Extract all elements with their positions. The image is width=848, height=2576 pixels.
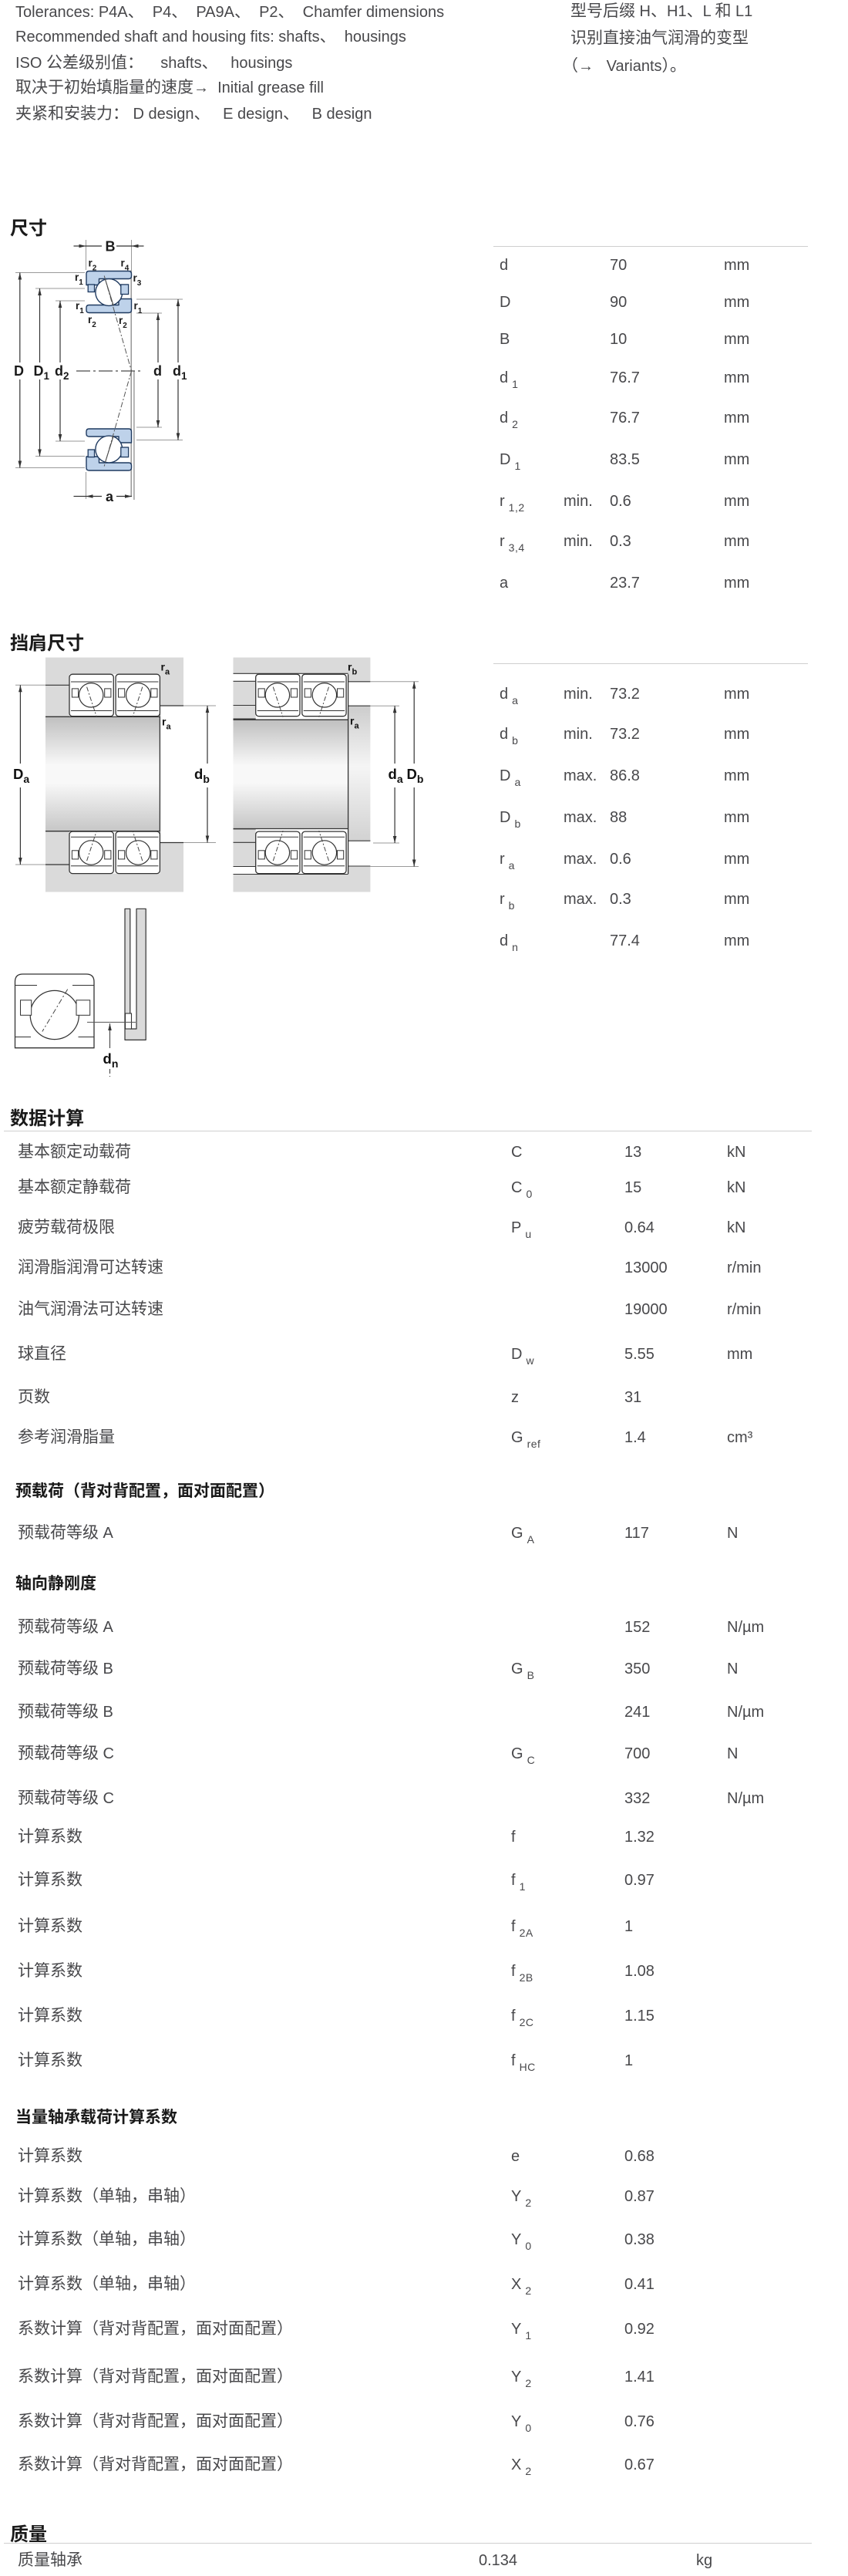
svg-text:r1: r1 bbox=[134, 300, 143, 315]
svg-text:B: B bbox=[106, 239, 116, 255]
svg-text:dn: dn bbox=[103, 1050, 119, 1070]
svg-text:r2: r2 bbox=[88, 314, 96, 329]
svg-text:a: a bbox=[106, 489, 114, 504]
svg-text:db: db bbox=[194, 766, 210, 785]
svg-text:D: D bbox=[14, 363, 24, 379]
svg-text:d2: d2 bbox=[55, 363, 69, 382]
svg-text:r3: r3 bbox=[133, 272, 142, 288]
svg-text:Da: Da bbox=[13, 766, 29, 785]
svg-text:r1: r1 bbox=[76, 300, 84, 315]
svg-text:d1: d1 bbox=[173, 363, 187, 382]
svg-text:r2: r2 bbox=[89, 258, 97, 273]
svg-text:D1: D1 bbox=[34, 363, 50, 382]
svg-text:r1: r1 bbox=[75, 271, 83, 287]
svg-text:r4: r4 bbox=[121, 258, 130, 273]
svg-text:d: d bbox=[153, 363, 162, 379]
svg-text:da: da bbox=[389, 766, 403, 785]
svg-text:Db: Db bbox=[407, 766, 424, 785]
svg-text:r2: r2 bbox=[119, 315, 127, 330]
